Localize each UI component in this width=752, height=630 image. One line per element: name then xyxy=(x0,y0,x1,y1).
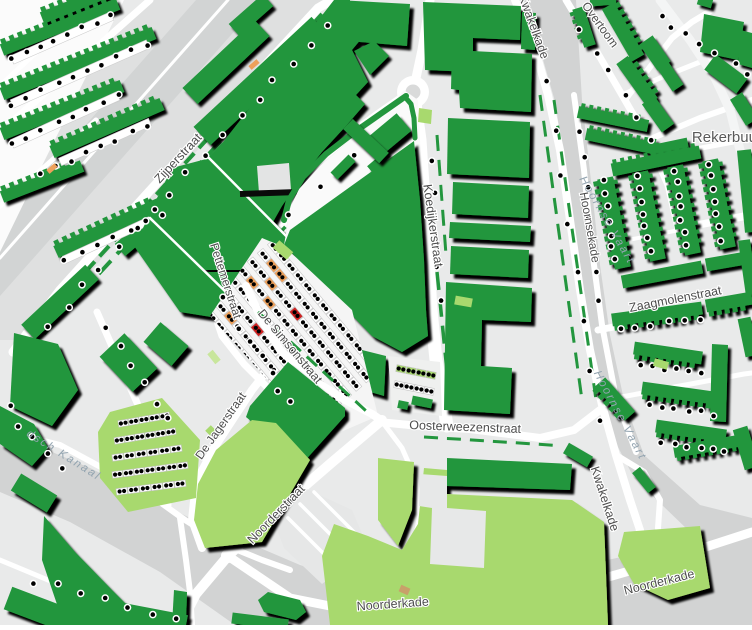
svg-text:Rekerbuurt: Rekerbuurt xyxy=(692,129,752,146)
